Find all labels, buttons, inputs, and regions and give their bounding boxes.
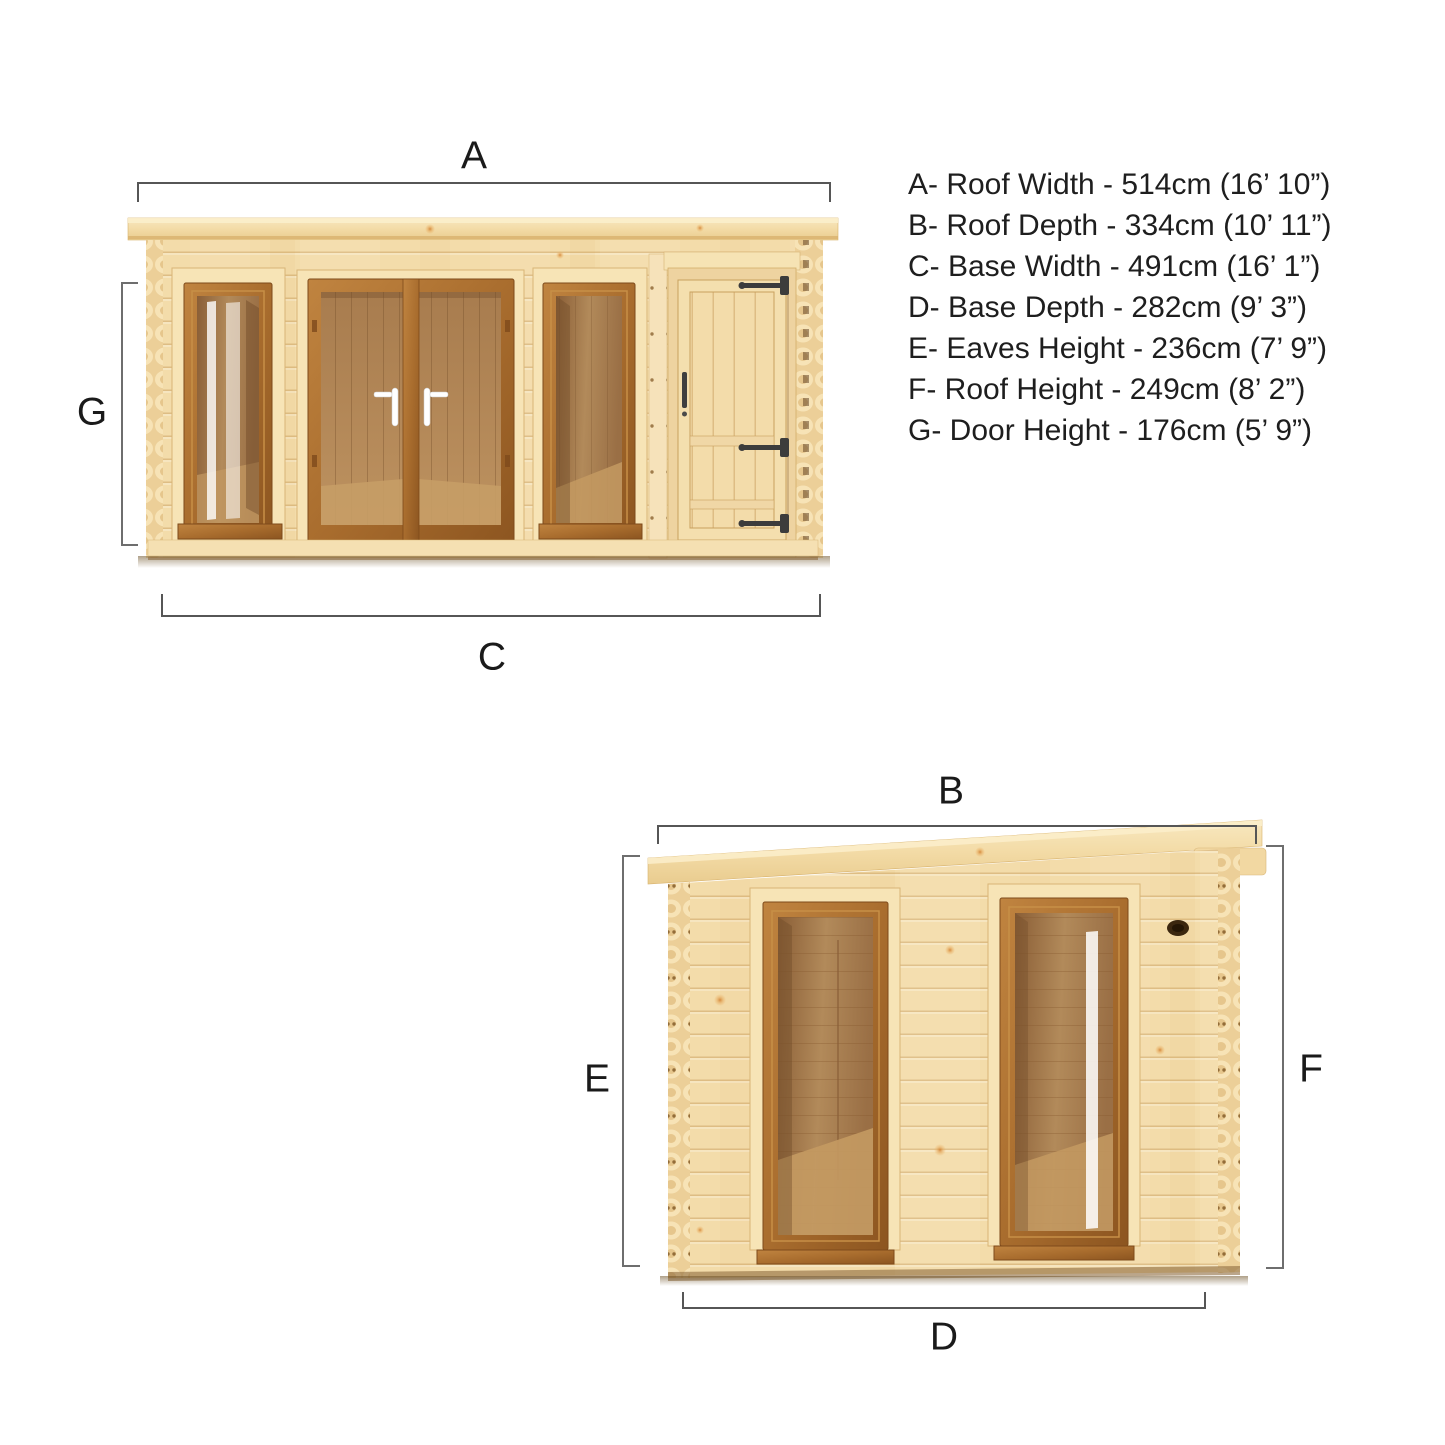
front-left-window bbox=[172, 268, 285, 548]
dim-letter-e: E bbox=[584, 1060, 610, 1099]
front-view bbox=[122, 183, 838, 616]
knot-hole bbox=[1167, 920, 1189, 936]
front-left-log-ends bbox=[146, 240, 163, 558]
bracket-a bbox=[138, 183, 830, 202]
front-shed-door bbox=[664, 252, 800, 554]
dim-letter-g: G bbox=[77, 393, 107, 432]
side-window-2 bbox=[988, 884, 1140, 1260]
dimension-line-e: E- Eaves Height - 236cm (7’ 9”) bbox=[908, 328, 1332, 369]
dim-letter-b: B bbox=[938, 772, 964, 811]
dimension-line-c: C- Base Width - 491cm (16’ 1”) bbox=[908, 246, 1332, 287]
dimension-key: A- Roof Width - 514cm (16’ 10”) B- Roof … bbox=[908, 164, 1332, 451]
side-window-1 bbox=[750, 888, 900, 1264]
dimension-line-a: A- Roof Width - 514cm (16’ 10”) bbox=[908, 164, 1332, 205]
dim-letter-d: D bbox=[930, 1318, 958, 1357]
dimension-line-d: D- Base Depth - 282cm (9’ 3”) bbox=[908, 287, 1332, 328]
bracket-c bbox=[162, 594, 820, 616]
front-base bbox=[138, 540, 830, 568]
front-double-doors bbox=[297, 270, 524, 552]
dimension-line-f: F- Roof Height - 249cm (8’ 2”) bbox=[908, 369, 1332, 410]
bracket-g bbox=[122, 283, 138, 545]
dimension-line-b: B- Roof Depth - 334cm (10’ 11”) bbox=[908, 205, 1332, 246]
front-right-window bbox=[533, 268, 647, 548]
bracket-e bbox=[623, 856, 640, 1266]
dim-letter-a: A bbox=[461, 137, 487, 176]
cabin-dimensions-diagram: A G C B E F D A- Roof Width - 514cm (16’… bbox=[0, 0, 1445, 1445]
bracket-d bbox=[683, 1292, 1205, 1308]
dim-letter-f: F bbox=[1299, 1050, 1323, 1089]
dimension-line-g: G- Door Height - 176cm (5’ 9”) bbox=[908, 410, 1332, 451]
bracket-f bbox=[1266, 846, 1283, 1268]
dim-letter-c: C bbox=[478, 638, 506, 677]
side-view bbox=[623, 820, 1283, 1308]
